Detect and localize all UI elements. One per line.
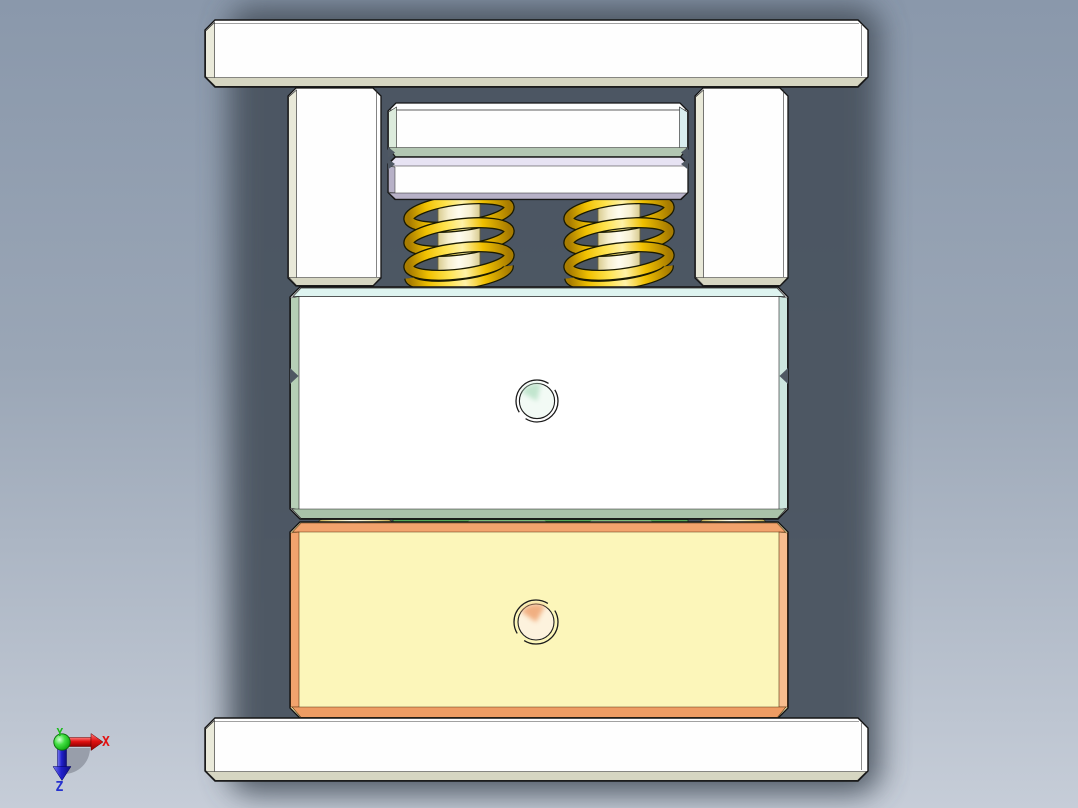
upper-die-block[interactable] (290, 287, 788, 519)
axis-y-label: Y (57, 726, 64, 739)
plate-left-bevel (389, 107, 397, 149)
pillar-face (288, 88, 381, 286)
pillar-bottom-bevel (289, 278, 381, 286)
plate-bottom-face (389, 148, 687, 157)
z-arrow-shaft (58, 749, 67, 767)
left-guide-pillar[interactable] (288, 88, 381, 286)
block-bottom-bevel (292, 707, 786, 717)
lower-die-block[interactable] (290, 522, 788, 718)
right-guide-pillar[interactable] (695, 88, 788, 286)
top-clamp-plate[interactable] (205, 20, 868, 87)
block-top-face (293, 288, 785, 297)
punch-holder-plate[interactable] (388, 103, 688, 157)
block-right-bevel (779, 297, 787, 511)
x-arrow-shaft (69, 738, 91, 747)
axis-x-label: X (102, 735, 110, 750)
block-right-bevel (779, 532, 787, 707)
plate-bottom-bevel (389, 193, 687, 199)
plate-left-bevel (206, 721, 215, 780)
pillar-bottom-bevel (696, 278, 788, 286)
block-left-bevel (291, 532, 299, 707)
pillar-face (695, 88, 788, 286)
plate-left-bevel (206, 23, 215, 86)
pillar-left-bevel (289, 90, 297, 284)
bottom-base-plate[interactable] (205, 718, 868, 781)
block-left-bevel (291, 297, 299, 511)
cad-viewport[interactable]: Y X Z (0, 0, 1078, 808)
block-top-bevel (293, 523, 786, 532)
plate-face (205, 20, 868, 87)
block-bottom-bevel (292, 509, 786, 518)
plate-right-bevel (680, 107, 688, 149)
plate-bottom-bevel (207, 772, 867, 781)
plate-left-bevel (389, 167, 396, 194)
pillar-left-bevel (696, 90, 704, 284)
plate-bottom-bevel (207, 78, 867, 87)
axis-z-label: Z (56, 780, 64, 795)
plate-top-face (389, 158, 688, 167)
